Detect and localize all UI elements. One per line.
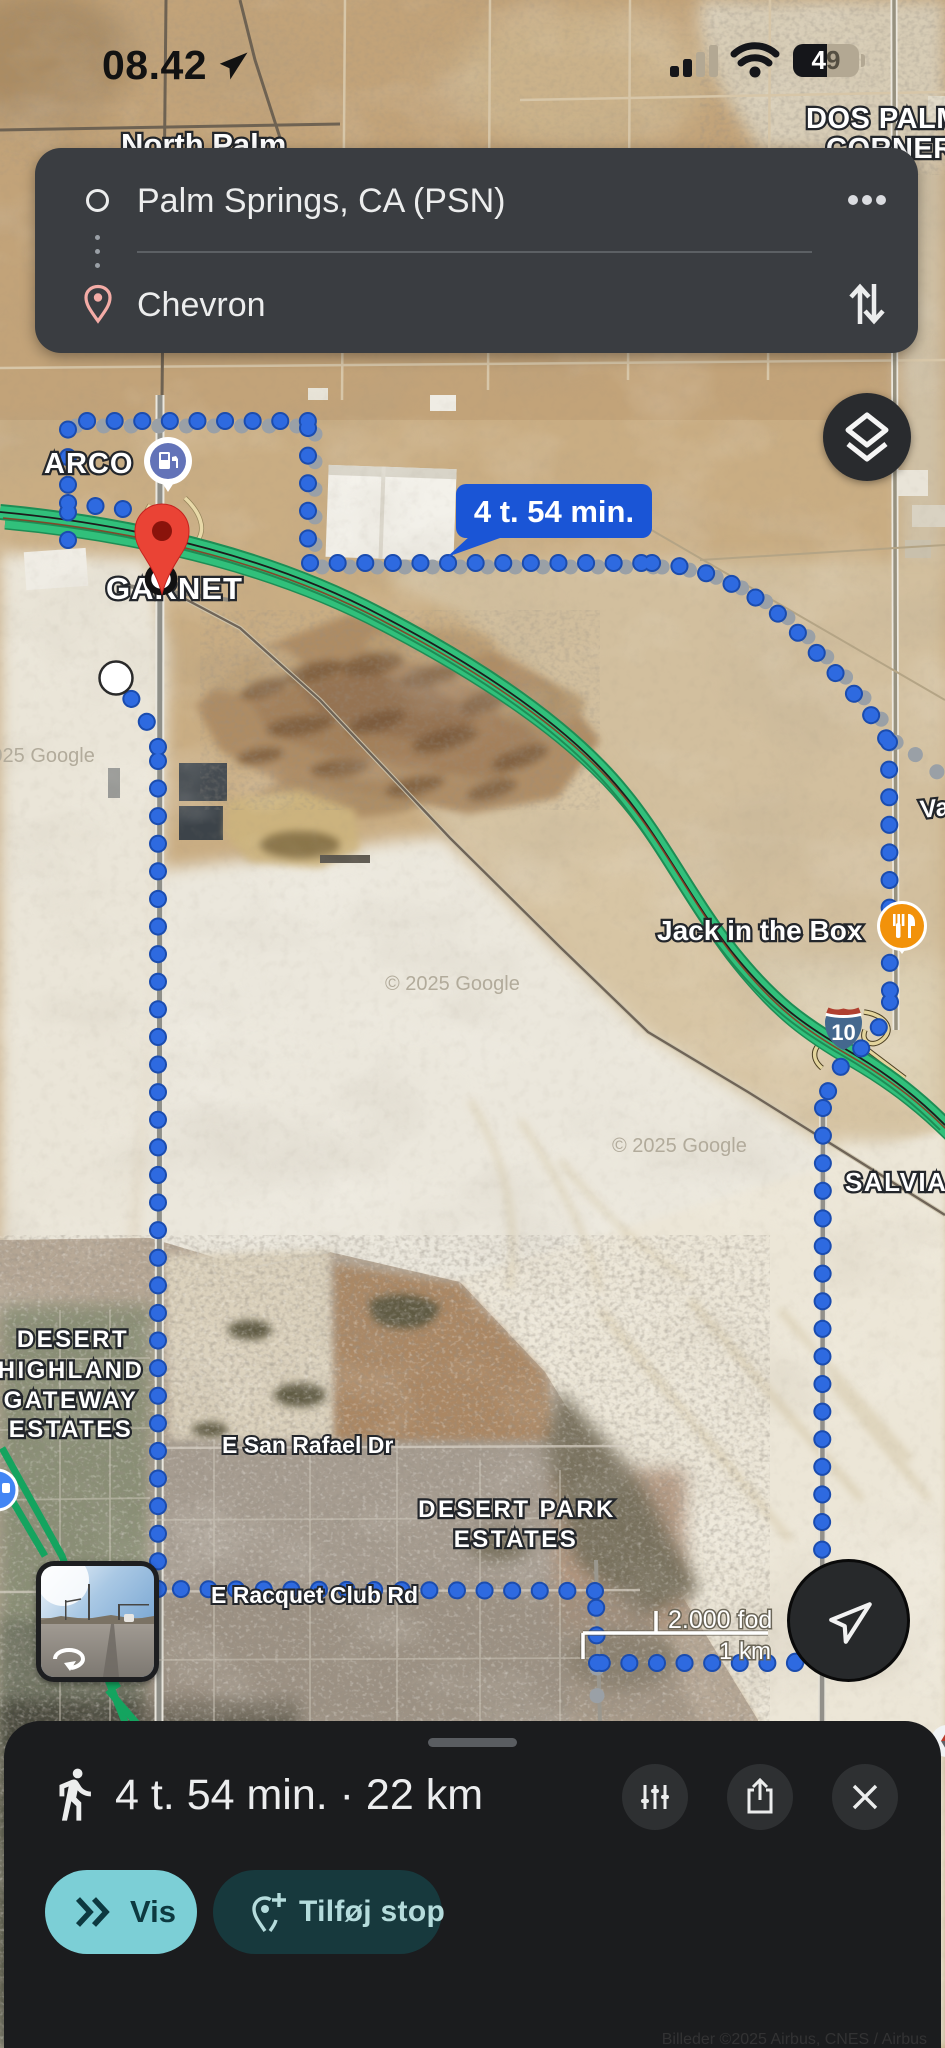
svg-text:HIGHLAND: HIGHLAND (0, 1357, 144, 1384)
svg-text:SALVIA: SALVIA (845, 1167, 945, 1197)
svg-text:© 2025 Google: © 2025 Google (612, 1135, 747, 1157)
svg-text:E Racquet Club Rd: E Racquet Club Rd (211, 1582, 418, 1608)
svg-text:© 2025 Google: © 2025 Google (0, 745, 95, 767)
svg-text:Va: Va (919, 793, 945, 824)
svg-text:Jack in the Box: Jack in the Box (657, 915, 863, 946)
svg-text:DESERT: DESERT (17, 1326, 129, 1353)
svg-text:GATEWAY: GATEWAY (4, 1387, 139, 1414)
svg-text:1 km: 1 km (719, 1638, 771, 1665)
svg-text:ARCO: ARCO (44, 448, 133, 480)
svg-text:ESTATES: ESTATES (454, 1526, 579, 1553)
svg-text:4 t. 54 min.: 4 t. 54 min. (474, 494, 634, 529)
svg-text:ESTATES: ESTATES (9, 1416, 134, 1443)
svg-text:DOS PALMAS: DOS PALMAS (806, 103, 945, 135)
svg-text:10: 10 (831, 1020, 855, 1045)
svg-text:E San Rafael Dr: E San Rafael Dr (222, 1432, 393, 1458)
svg-text:2.000 fod: 2.000 fod (668, 1606, 772, 1634)
svg-text:© 2025 Google: © 2025 Google (385, 973, 520, 995)
svg-text:DESERT PARK: DESERT PARK (418, 1496, 616, 1523)
